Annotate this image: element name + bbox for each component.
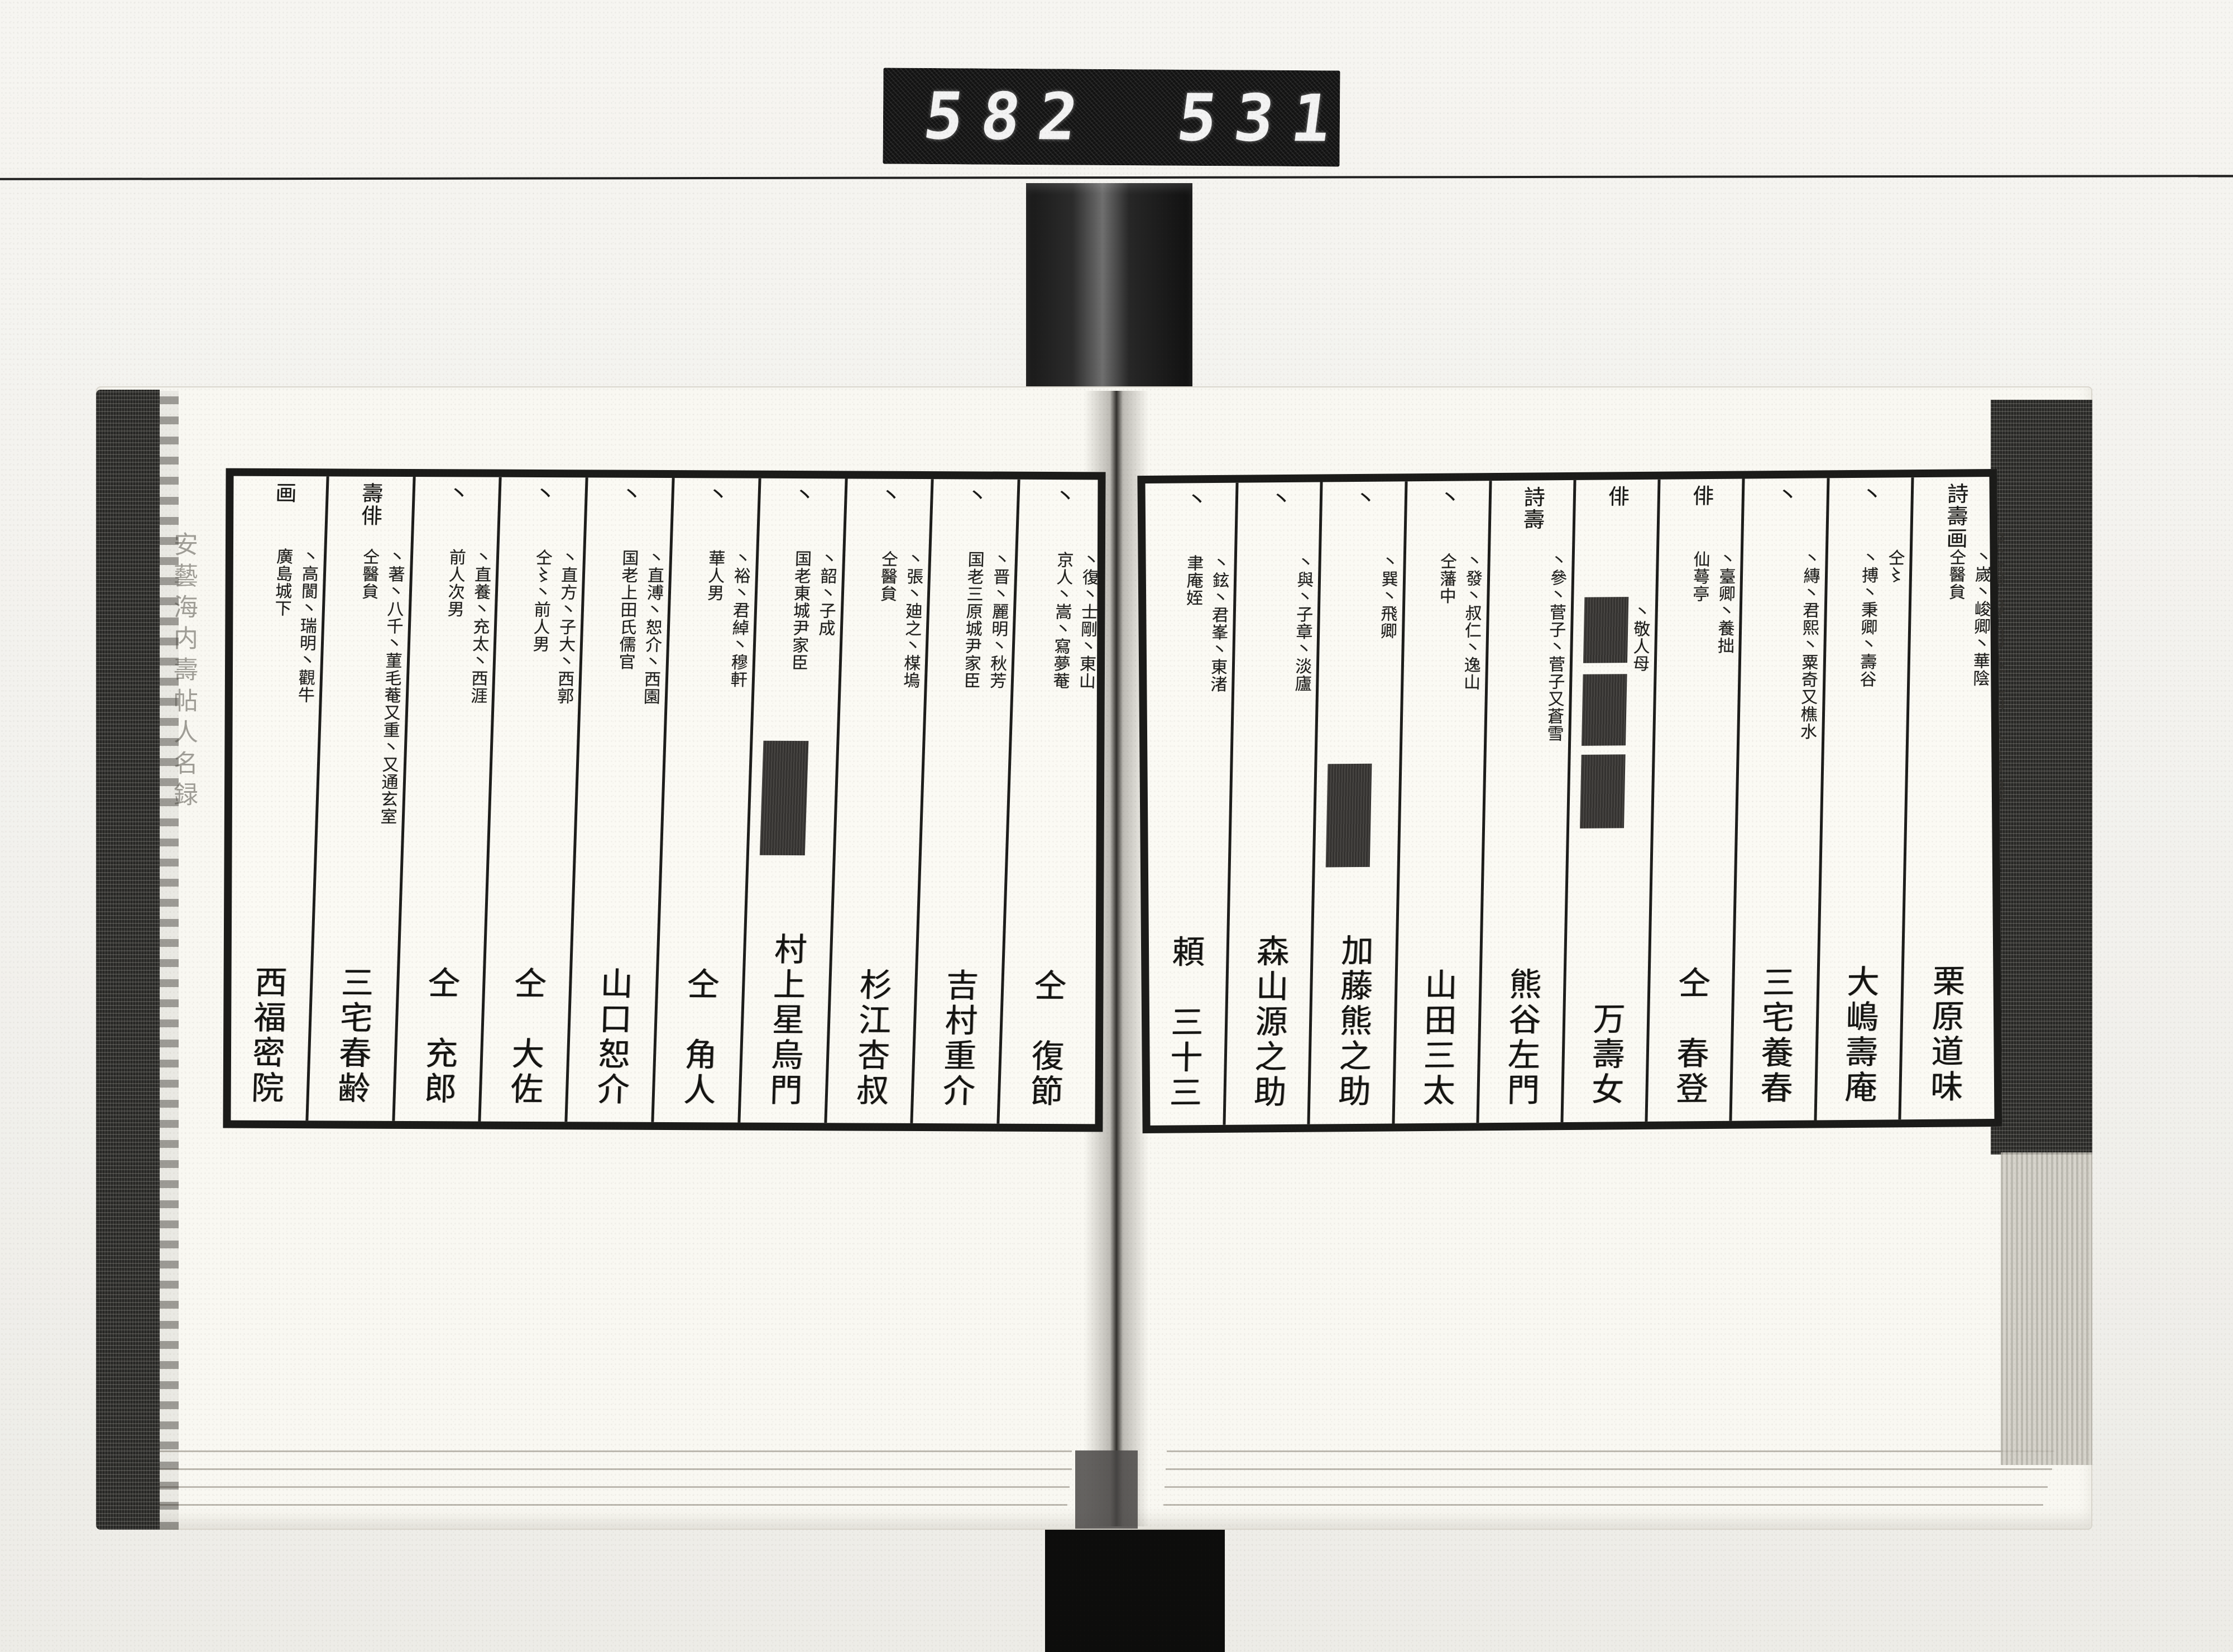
person-name: 加藤熊之助: [1310, 933, 1396, 1109]
entry-column: 丶 仝〻 丶搏丶秉卿丶壽谷 大嶋壽庵: [1817, 477, 1914, 1120]
binding-clip-small: [1075, 1450, 1138, 1529]
person-name: 仝 角人: [654, 967, 742, 1108]
right-page-columns: 詩壽画 丶嵗丶峻卿丶華陰 仝醫貟 栗原道味 丶 仝〻 丶搏丶秉卿丶壽谷 大嶋壽庵…: [1141, 477, 1998, 1126]
person-name: 西福密院: [223, 965, 310, 1107]
entry-notes: 丶參丶菅子丶菅子又蒼雪: [1486, 552, 1570, 912]
page-edge-line: [1166, 1468, 2052, 1470]
right-page-register-table: 詩壽画 丶嵗丶峻卿丶華陰 仝醫貟 栗原道味 丶 仝〻 丶搏丶秉卿丶壽谷 大嶋壽庵…: [1137, 469, 2002, 1133]
redaction-mark: [1580, 754, 1626, 829]
entry-notes: 丶縳丶君熙丶粟奇又樵水: [1738, 549, 1823, 910]
category-header: 詩壽: [1491, 486, 1574, 531]
person-name: 栗原道味: [1901, 964, 1988, 1105]
person-name: 万壽女: [1564, 1002, 1647, 1108]
entry-column: 詩壽画 丶嵗丶峻卿丶華陰 仝醫貟 栗原道味: [1901, 477, 1998, 1119]
category-header: 丶: [1154, 489, 1236, 511]
entry-notes: 丶鉉丶君峯丶東渚 聿庵姪: [1148, 554, 1232, 915]
page-edge-line: [134, 1504, 1067, 1506]
redaction-mark: [1326, 764, 1372, 868]
category-header: 丶: [501, 483, 585, 506]
category-header: 丶: [1019, 485, 1105, 508]
person-name: 仝 春登: [1648, 966, 1732, 1107]
entry-column: 詩壽 丶參丶菅子丶菅子又蒼雪 熊谷左門: [1479, 480, 1576, 1123]
frame-counter-value-right: 531: [1173, 80, 1353, 156]
entry-notes: 丶復丶士剛丶東山 京人丶嵩丶寫夢菴: [1009, 551, 1103, 912]
entry-notes: 丶直溥丶恕介丶西園 国老上田氏儒官: [577, 549, 668, 909]
page-edge-line: [128, 1450, 1072, 1452]
page-edge-line: [1167, 1450, 2054, 1452]
category-header: 丶: [933, 485, 1017, 507]
page-edge-line: [130, 1468, 1072, 1470]
entry-notes: 丶韶丶子成 国老東城尹家臣: [749, 550, 840, 911]
person-name: 大嶋壽庵: [1817, 964, 1901, 1105]
frame-counter-value-left: 582: [919, 79, 1100, 155]
scan-shadow-band-left: [96, 390, 160, 1530]
category-header: 丶: [674, 483, 758, 506]
person-name: 三宅養春: [1732, 965, 1817, 1107]
person-name: 仝 充郎: [395, 966, 483, 1107]
scan-rule-line: [0, 175, 2233, 180]
category-header: 丶: [1407, 486, 1489, 509]
entry-notes: 丶晋丶麗明丶秋芳 国老三原城尹家臣: [922, 550, 1013, 911]
redaction-mark: [760, 741, 808, 855]
category-header: 詩壽画: [1913, 482, 1999, 550]
person-name: 仝 復節: [1000, 969, 1091, 1110]
entry-column: 丶 丶縳丶君熙丶粟奇又樵水 三宅養春: [1732, 478, 1829, 1121]
left-page-columns: 丶 丶復丶士剛丶東山 京人丶嵩丶寫夢菴 仝 復節 丶 丶晋丶麗明丶秋芳 国老三原…: [223, 476, 1105, 1124]
entry-column: 丶 丶鉉丶君峯丶東渚 聿庵姪 頼 三十三: [1141, 483, 1238, 1126]
category-header: 俳: [1660, 485, 1742, 507]
entry-notes: 丶張丶廸之丶楳塢 仝醫貟: [836, 550, 927, 911]
category-header: 丶: [1829, 483, 1911, 506]
page-edge-line: [1165, 1486, 2048, 1488]
entry-notes: 丶高閬丶瑞明丶觀牛 廣島城下: [231, 548, 322, 908]
person-name: 三宅春齢: [309, 965, 397, 1107]
person-name: 杉江杏叔: [827, 968, 916, 1109]
left-page-register-table: 丶 丶復丶士剛丶東山 京人丶嵩丶寫夢菴 仝 復節 丶 丶晋丶麗明丶秋芳 国老三原…: [223, 468, 1105, 1132]
person-name: 村上星烏門: [741, 932, 830, 1109]
entry-notes: 丶臺卿丶養拙 仙蕚亭: [1654, 550, 1738, 911]
entry-notes: 丶發丶叔仁丶逸山 仝藩中: [1401, 552, 1486, 913]
category-header: 丶: [760, 484, 845, 507]
page-edge-line: [1163, 1504, 2043, 1506]
category-header: 画: [242, 482, 326, 505]
person-name: 山口恕介: [568, 966, 656, 1108]
category-header: 丶: [415, 482, 499, 505]
frame-counter: 582 531: [883, 68, 1340, 167]
person-name: 熊谷左門: [1479, 967, 1564, 1108]
category-header: 壽俳: [328, 482, 413, 527]
entry-column: 俳 丶敬人母 万壽女: [1563, 480, 1660, 1122]
person-name: 山田三太: [1395, 968, 1479, 1109]
page-edge-line: [132, 1486, 1070, 1488]
entry-notes: 丶著丶八千丶菫毛菴又重丶又通玄室 仝醫貟: [317, 548, 408, 908]
binding-clip-large: [1045, 1530, 1225, 1652]
entry-notes: 仝〻 丶搏丶秉卿丶壽谷: [1823, 549, 1908, 909]
entry-notes: 丶與丶子章丶淡廬: [1232, 554, 1316, 914]
entry-notes: 丶直養丶充太丶西涯 前人次男: [404, 548, 495, 909]
category-header: 俳: [1576, 485, 1658, 508]
entry-notes: 丶嵗丶峻卿丶華陰 仝醫貟: [1908, 548, 1995, 909]
category-header: 丶: [587, 483, 672, 506]
category-header: 丶: [847, 484, 931, 507]
redaction-mark: [1583, 597, 1628, 663]
category-header: 丶: [1322, 487, 1405, 510]
entry-column: 俳 丶臺卿丶養拙 仙蕚亭 仝 春登: [1648, 479, 1745, 1122]
person-name: 森山源之助: [1226, 934, 1311, 1110]
entry-column: 丶 丶與丶子章丶淡廬 森山源之助: [1226, 482, 1323, 1124]
scan-shadow-band-right-lower: [2001, 1152, 2092, 1465]
person-name: 仝 大佐: [482, 966, 570, 1108]
entry-notes: 丶直方丶子大丶西郭 仝〻丶前人男: [490, 549, 581, 909]
entry-column: 丶 丶巽丶飛卿 加藤熊之助: [1310, 481, 1407, 1124]
person-name: 吉村重介: [914, 968, 1002, 1109]
entry-notes: 丶裕丶君綽丶穆軒 華人男: [663, 549, 754, 910]
left-margin-handwritten-title: 安藝海内壽帖人名録: [165, 531, 201, 1134]
microfilm-scan: 582 531 安藝海内壽帖人名録 安藝海内俳帖人名録 丶 丶復丶士剛丶東山 京…: [0, 0, 2233, 1652]
person-name: 頼 三十三: [1142, 935, 1227, 1111]
entry-column: 丶 丶發丶叔仁丶逸山 仝藩中 山田三太: [1395, 481, 1492, 1123]
redaction-mark: [1582, 674, 1627, 746]
category-header: 丶: [1238, 487, 1320, 510]
category-header: 丶: [1745, 483, 1827, 506]
